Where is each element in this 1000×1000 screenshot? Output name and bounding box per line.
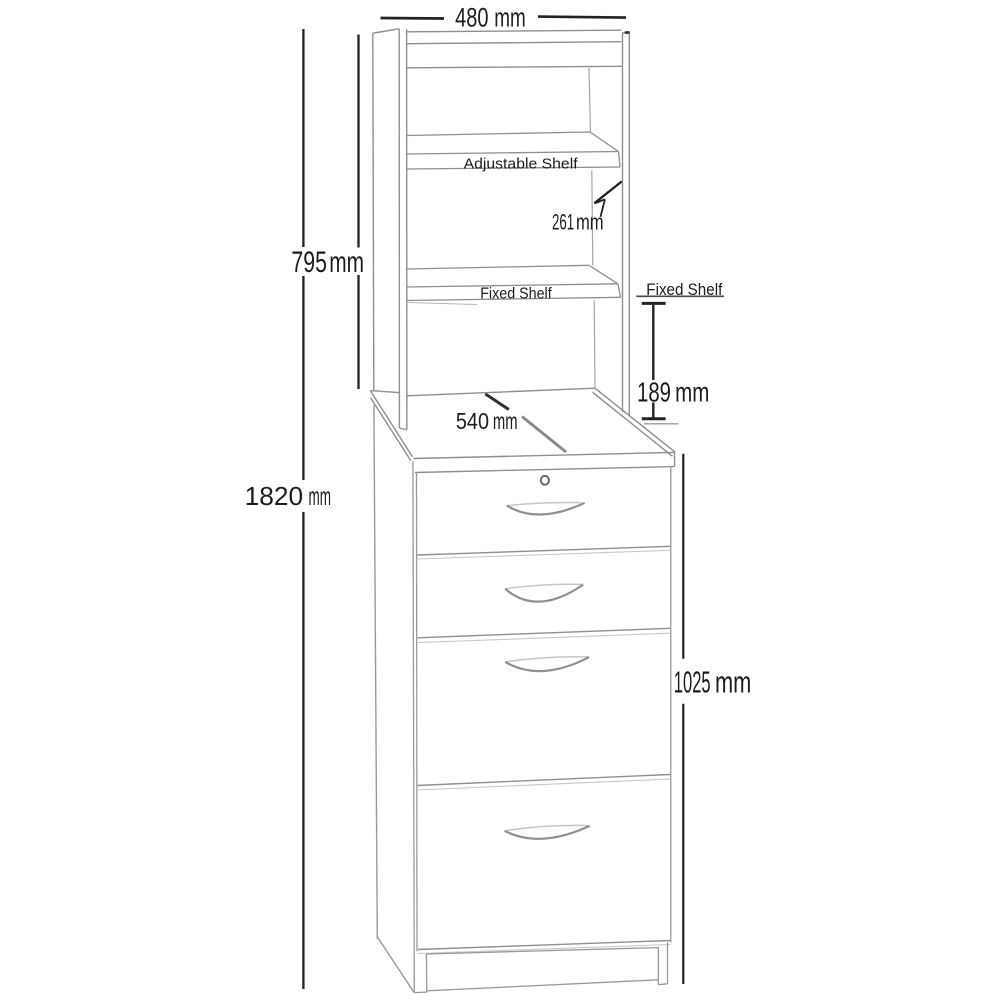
svg-text:1025: 1025 (674, 665, 711, 700)
svg-text:1820: 1820 (245, 481, 304, 511)
svg-text:mm: mm (493, 408, 518, 434)
svg-text:795: 795 (291, 246, 327, 279)
svg-text:mm: mm (715, 665, 751, 700)
svg-text:mm: mm (329, 246, 364, 279)
svg-text:mm: mm (309, 481, 332, 511)
svg-text:mm: mm (576, 209, 604, 234)
svg-text:480: 480 (455, 3, 488, 33)
svg-text:540: 540 (456, 408, 489, 434)
svg-text:mm: mm (494, 3, 526, 33)
svg-text:Fixed Shelf: Fixed Shelf (480, 285, 552, 302)
svg-text:261: 261 (552, 209, 574, 234)
svg-text:mm: mm (675, 377, 709, 408)
svg-text:Adjustable Shelf: Adjustable Shelf (464, 156, 579, 172)
svg-text:189: 189 (637, 377, 671, 408)
